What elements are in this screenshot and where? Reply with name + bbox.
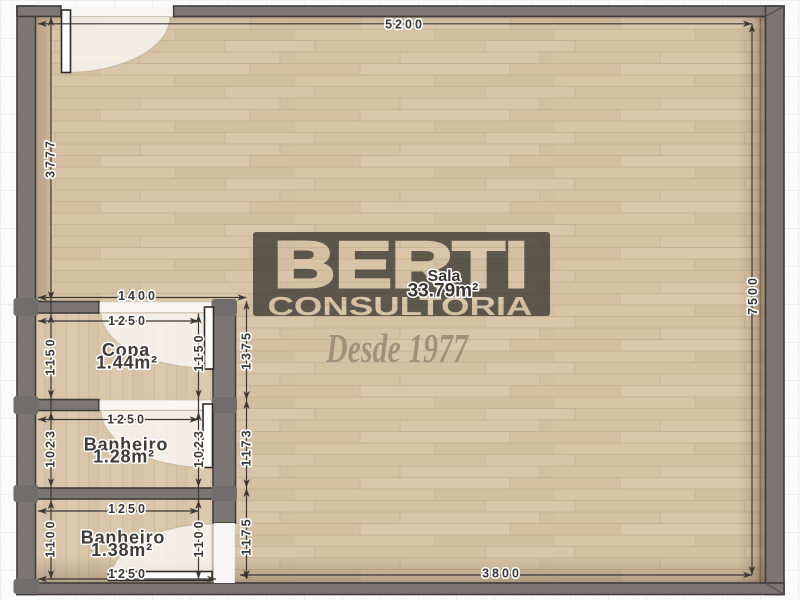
svg-text:1175: 1175 <box>240 516 254 555</box>
svg-text:1.28m²: 1.28m² <box>93 447 155 467</box>
svg-text:33.79m²: 33.79m² <box>408 281 479 302</box>
svg-text:3800: 3800 <box>482 567 522 581</box>
svg-text:1100: 1100 <box>44 518 58 557</box>
svg-text:1150: 1150 <box>44 336 58 375</box>
svg-text:1400: 1400 <box>118 289 158 303</box>
svg-text:1.44m²: 1.44m² <box>96 353 158 373</box>
svg-text:1023: 1023 <box>192 428 206 468</box>
svg-text:1023: 1023 <box>44 428 58 468</box>
svg-text:1.38m²: 1.38m² <box>91 540 153 560</box>
svg-text:1250: 1250 <box>108 502 148 516</box>
svg-text:3777: 3777 <box>44 138 58 178</box>
svg-text:1250: 1250 <box>108 314 148 328</box>
svg-text:7500: 7500 <box>746 275 760 315</box>
svg-text:1150: 1150 <box>192 332 206 371</box>
svg-text:1250: 1250 <box>108 567 148 581</box>
svg-text:Desde 1977: Desde 1977 <box>325 325 469 371</box>
svg-text:1100: 1100 <box>192 518 206 557</box>
svg-text:1250: 1250 <box>107 413 147 427</box>
svg-text:5200: 5200 <box>385 18 425 32</box>
svg-text:1375: 1375 <box>240 330 254 370</box>
svg-text:1173: 1173 <box>240 427 254 466</box>
